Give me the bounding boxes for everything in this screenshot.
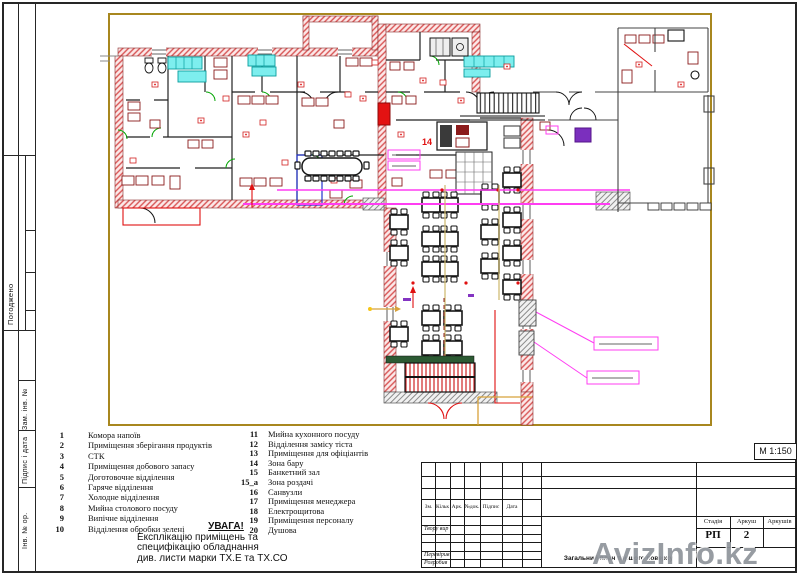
- floor-plan: 14: [100, 14, 716, 426]
- stamp-row-label: Твору вир: [424, 526, 448, 532]
- room-tags: [130, 60, 684, 183]
- sidebar-divider: [4, 155, 35, 156]
- purple-marks: [403, 294, 474, 301]
- sanitary-fixtures: [145, 58, 166, 73]
- sidebar-label-sign-date: Підпис і дата: [22, 437, 29, 484]
- sheet-label: Аркуш: [730, 518, 763, 525]
- legend-item: 8Мийна столового посуду: [46, 503, 212, 513]
- legend-item: 2Приміщення зберігання продуктів: [46, 440, 212, 450]
- orange-arrowhead: [395, 306, 401, 312]
- bar-zone-number: 14: [422, 137, 432, 147]
- notice-title: УВАГА!: [137, 521, 315, 532]
- sidebar-label-replace-inv: Зам. інв. №: [22, 388, 29, 430]
- stage-label: Стадія: [696, 518, 730, 525]
- stairs-top: [460, 93, 545, 120]
- notice: УВАГА! Експлікацію приміщень та специфік…: [137, 521, 315, 564]
- sidebar-divider: [35, 2, 36, 571]
- sidebar-divider: [25, 272, 35, 273]
- stamp-column-header: Кільк: [435, 504, 450, 510]
- legend-item: 5Доготовочне відділення: [46, 472, 212, 482]
- stamp-column-headers: Зм.КількАрк.№док.ПідписДата: [422, 504, 522, 510]
- notice-line: див. листи марки ТХ.Е та ТХ.СО: [137, 554, 315, 564]
- legend-left-column: 1Комора напоїв 2Приміщення зберігання пр…: [46, 430, 212, 534]
- sheets-label: Аркушів: [763, 518, 796, 525]
- long-table: [295, 151, 369, 181]
- red-equipment-block: [378, 103, 390, 125]
- stamp-row-label: Розробив: [424, 560, 447, 566]
- sidebar-divider: [25, 155, 26, 330]
- legend-item: 7Холодне відділення: [46, 492, 212, 502]
- yellow-dot: [368, 307, 372, 311]
- sidebar-divider: [25, 230, 35, 231]
- legend-right-column: 11Мийна кухонного посуду 12Відділення за…: [234, 430, 368, 536]
- stamp-column-header: Зм.: [422, 504, 435, 510]
- legend-item: 1Комора напоїв: [46, 430, 212, 440]
- watermark: AvizInfo.kz: [592, 536, 758, 572]
- dining-tables: [390, 167, 521, 361]
- sidebar-divider: [19, 380, 35, 381]
- stamp-column-header: Підпис: [480, 504, 502, 510]
- legend-item: 6Гаряче відділення: [46, 482, 212, 492]
- sidebar-label-agreed: Погоджено: [6, 283, 15, 325]
- sidebar-divider: [4, 330, 35, 331]
- scale-box: М 1:150: [754, 443, 797, 460]
- stamp-column-header: Арк.: [450, 504, 464, 510]
- sidebar-divider: [19, 430, 35, 431]
- stamp-row-label: Перевірив: [424, 552, 450, 558]
- legend-item: 4Приміщення добового запасу: [46, 461, 212, 471]
- tag-dots: [154, 64, 682, 182]
- window-row: [648, 203, 711, 210]
- sidebar-divider: [18, 2, 19, 571]
- sidebar-divider: [19, 487, 35, 488]
- stamp-column-header: Дата: [502, 504, 522, 510]
- sidebar-label-inv-orig: Інв. № ор.: [22, 512, 29, 549]
- sidebar-divider: [25, 310, 35, 311]
- purple-block: [575, 128, 591, 142]
- legend-item: 3СТК: [46, 451, 212, 461]
- stamp-column-header: №док.: [464, 504, 480, 510]
- stairs-bottom: [386, 356, 475, 392]
